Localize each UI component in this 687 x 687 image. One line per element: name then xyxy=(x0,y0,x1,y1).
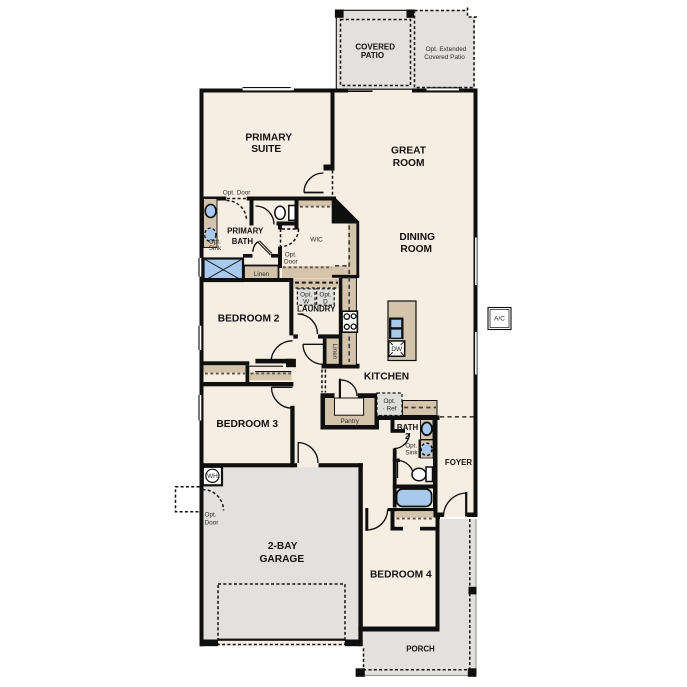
svg-text:DINING: DINING xyxy=(399,232,435,243)
svg-text:Door: Door xyxy=(205,520,220,527)
svg-text:ROOM: ROOM xyxy=(400,244,432,255)
svg-text:2: 2 xyxy=(405,432,410,441)
svg-text:BATH: BATH xyxy=(397,423,419,432)
svg-text:PRIMARY: PRIMARY xyxy=(227,227,264,236)
svg-text:WIC: WIC xyxy=(310,237,323,244)
svg-text:SUITE: SUITE xyxy=(251,144,281,155)
svg-text:Opt. Extended: Opt. Extended xyxy=(426,46,467,53)
svg-text:GREAT: GREAT xyxy=(391,146,427,157)
svg-text:ROOM: ROOM xyxy=(393,158,425,169)
svg-text:LAUNDRY: LAUNDRY xyxy=(297,304,336,313)
svg-text:BATH: BATH xyxy=(232,237,254,246)
svg-text:Pantry: Pantry xyxy=(340,418,359,425)
svg-text:Opt.: Opt. xyxy=(205,512,217,519)
svg-text:Opt. Door: Opt. Door xyxy=(223,189,252,196)
svg-text:BEDROOM 2: BEDROOM 2 xyxy=(218,314,280,325)
svg-text:A/C: A/C xyxy=(494,316,505,323)
svg-text:PRIMARY: PRIMARY xyxy=(245,133,292,144)
svg-text:GARAGE: GARAGE xyxy=(259,554,304,565)
svg-text:WH: WH xyxy=(207,473,218,480)
svg-text:PATIO: PATIO xyxy=(361,51,384,60)
svg-text:Covered Patio: Covered Patio xyxy=(424,54,465,61)
svg-text:2-BAY: 2-BAY xyxy=(268,541,298,552)
svg-text:Sink: Sink xyxy=(405,450,418,457)
svg-text:FOYER: FOYER xyxy=(445,458,472,467)
svg-text:BEDROOM 3: BEDROOM 3 xyxy=(216,419,278,430)
svg-text:· Ref: · Ref xyxy=(383,405,397,412)
svg-text:Opt.: Opt. xyxy=(405,443,417,450)
svg-text:KITCHEN: KITCHEN xyxy=(364,372,409,383)
svg-text:Door: Door xyxy=(284,258,299,265)
svg-text:Opt.: Opt. xyxy=(300,291,312,298)
svg-text:PORCH: PORCH xyxy=(406,645,435,654)
svg-text:Opt.: Opt. xyxy=(383,398,395,405)
svg-text:Opt.: Opt. xyxy=(319,291,331,298)
svg-text:Sink: Sink xyxy=(209,245,222,252)
svg-text:Linen: Linen xyxy=(254,271,270,278)
svg-text:BEDROOM 4: BEDROOM 4 xyxy=(370,570,432,581)
svg-text:Linen: Linen xyxy=(331,344,338,360)
svg-text:DW: DW xyxy=(391,346,403,353)
